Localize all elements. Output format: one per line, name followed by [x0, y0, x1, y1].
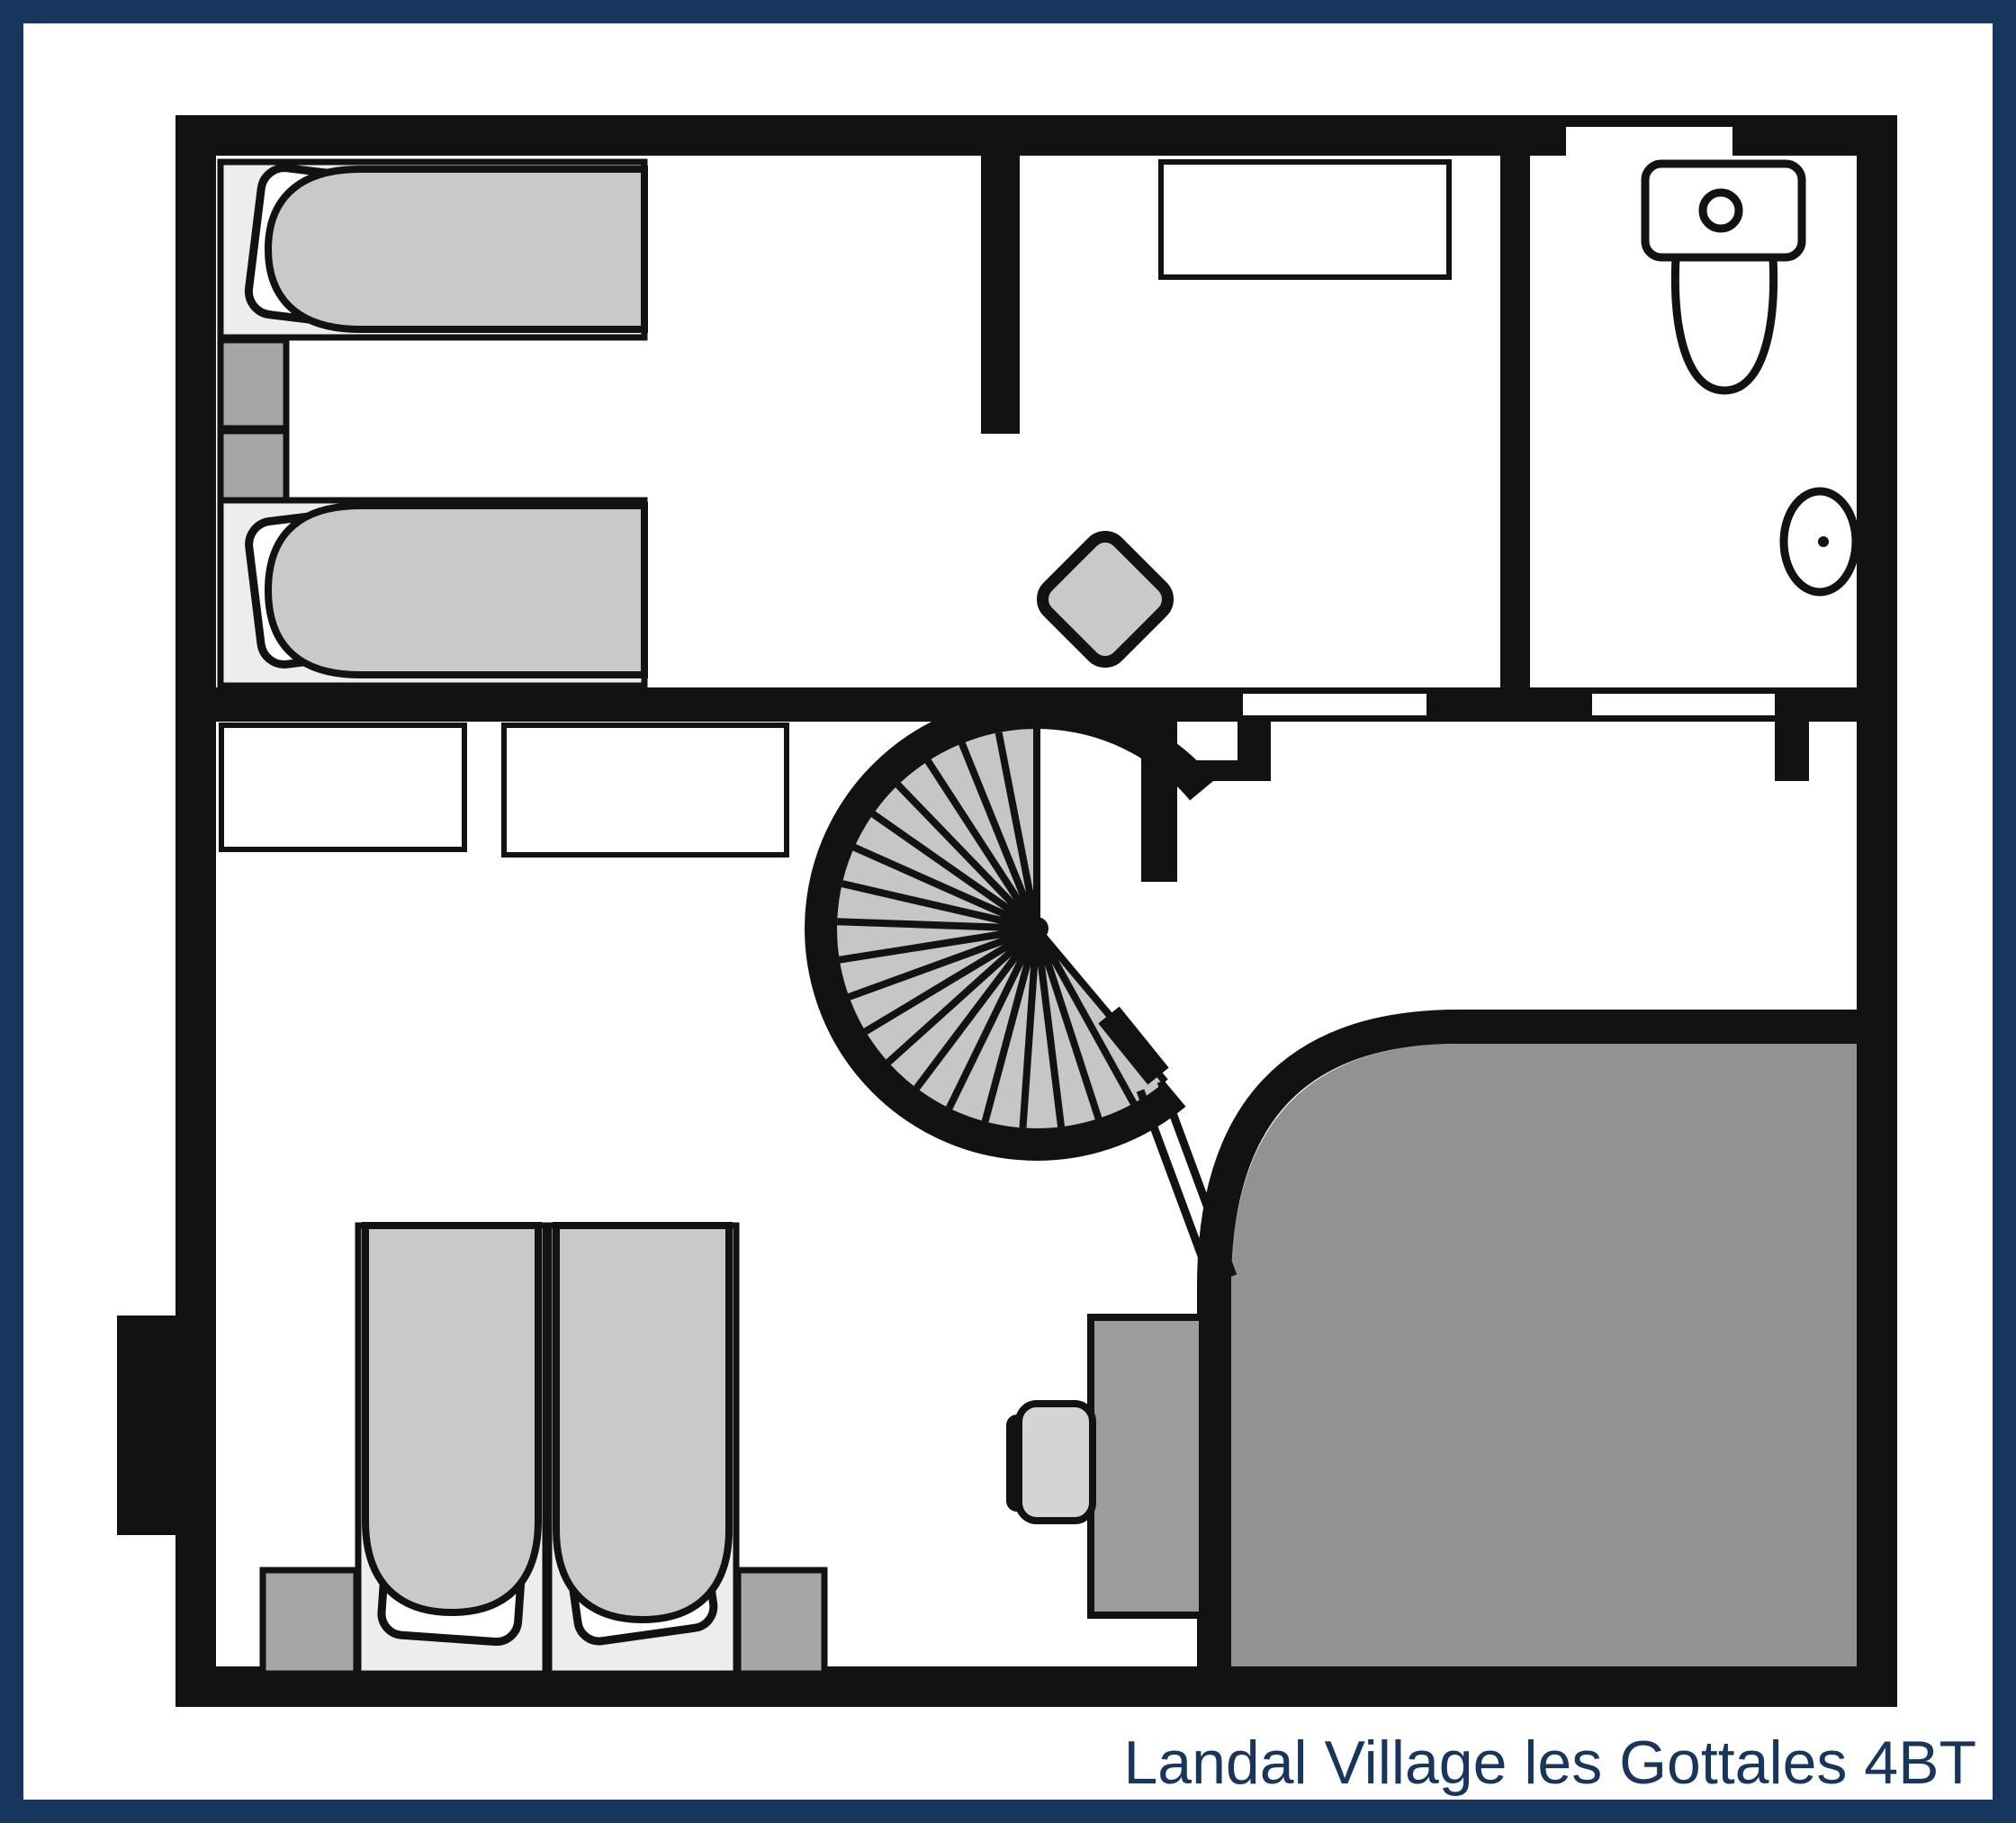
floorplan-page: Landal Village les Gottales 4BT [0, 0, 2016, 1823]
caption: Landal Village les Gottales 4BT [1123, 1729, 1976, 1797]
bathroom-fixtures [1645, 164, 1859, 592]
stair-hub [1025, 917, 1048, 940]
mattress-2 [268, 506, 644, 675]
bedroom-bottom-left [263, 1226, 824, 1674]
chair-seat [1019, 1404, 1093, 1521]
floor-plan: Landal Village les Gottales 4BT [0, 0, 2016, 1823]
toilet-flush-button [1703, 193, 1739, 229]
nightstand-left [263, 1570, 356, 1674]
wall-left-notch [117, 1316, 216, 1535]
nightstand-1 [220, 340, 286, 428]
wall-right [1857, 115, 1897, 1707]
window-opening [1566, 127, 1732, 156]
wall-bathroom-jamb [1775, 722, 1809, 781]
nightstand-right [738, 1570, 824, 1674]
mattress-left [365, 1226, 538, 1612]
mattress-right [556, 1226, 729, 1620]
washbasin-drain [1818, 536, 1829, 547]
wardrobe-1 [221, 725, 464, 849]
side-table [1035, 529, 1175, 669]
wall-bedroom-partition [981, 115, 1020, 434]
desk [1091, 1317, 1202, 1615]
mattress-1 [268, 169, 644, 329]
door-opening-bathroom [1592, 694, 1775, 715]
door-opening-hall [1243, 694, 1426, 715]
void-area [1231, 1044, 1857, 1666]
toilet-bowl [1675, 257, 1773, 391]
wall-bathroom-partition [1500, 127, 1530, 722]
bedroom-top-left [220, 162, 644, 686]
wardrobe-2 [504, 725, 787, 855]
sideboard [1161, 162, 1449, 277]
